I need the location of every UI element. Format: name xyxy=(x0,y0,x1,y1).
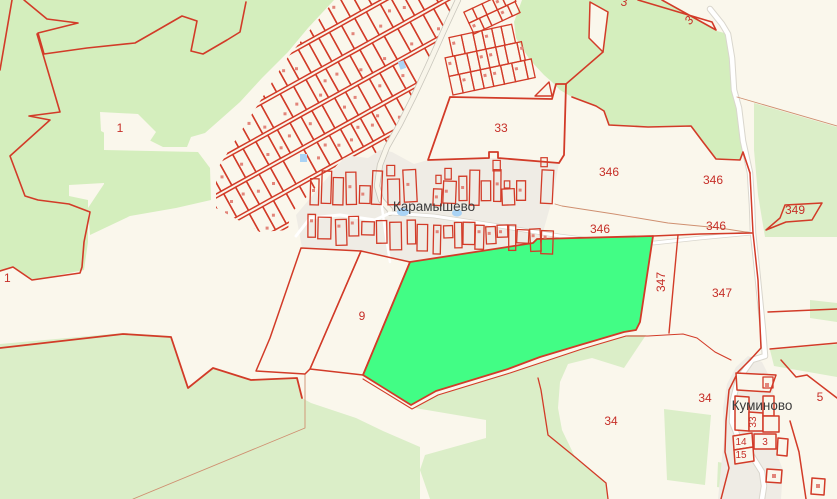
svg-text:347: 347 xyxy=(712,286,732,300)
svg-text:34: 34 xyxy=(698,391,712,405)
svg-text:349: 349 xyxy=(785,203,805,217)
svg-text:14: 14 xyxy=(735,437,747,448)
svg-text:9: 9 xyxy=(359,309,366,323)
svg-text:3: 3 xyxy=(621,0,628,9)
svg-text:15: 15 xyxy=(735,450,747,461)
svg-text:Куминово: Куминово xyxy=(732,398,793,413)
svg-text:347: 347 xyxy=(654,272,668,292)
svg-text:346: 346 xyxy=(703,173,723,187)
svg-text:5: 5 xyxy=(817,390,824,404)
svg-text:Карамышево: Карамышево xyxy=(393,199,475,214)
svg-text:346: 346 xyxy=(706,219,726,233)
svg-text:1: 1 xyxy=(4,271,11,285)
svg-text:1: 1 xyxy=(117,121,124,135)
svg-text:3: 3 xyxy=(762,437,768,448)
svg-text:33: 33 xyxy=(748,416,759,428)
svg-text:346: 346 xyxy=(599,165,619,179)
svg-text:346: 346 xyxy=(590,222,610,236)
svg-text:34: 34 xyxy=(604,414,618,428)
svg-text:33: 33 xyxy=(494,121,508,135)
